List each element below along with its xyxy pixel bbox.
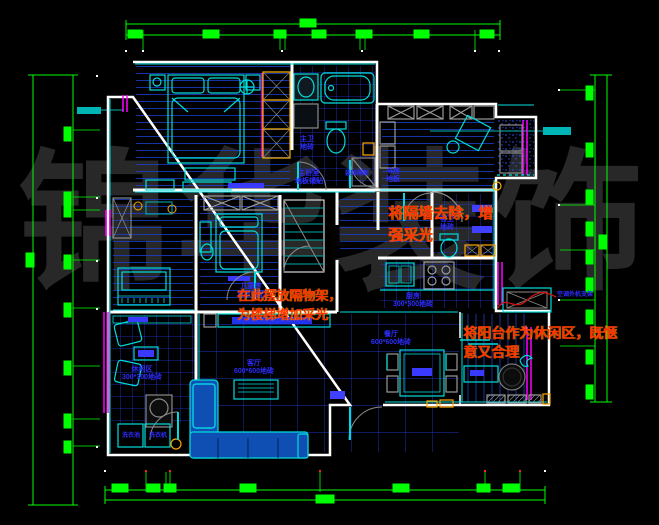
- bench-cushion: [470, 370, 484, 376]
- label-washing-machine: 洗衣机: [149, 433, 167, 440]
- label-study: 书房 地板: [386, 168, 400, 184]
- staircase: [284, 200, 324, 272]
- cad-floorplan-screenshot: 锦华装饰: [0, 0, 659, 525]
- label-dining-room: 餐厅 600*600地砖: [371, 331, 411, 347]
- label-hall-divider: 装饰隔断: [345, 171, 369, 178]
- washer: [294, 104, 318, 128]
- bottom-cabinets: [487, 394, 550, 404]
- floor-lamp: [171, 439, 181, 449]
- annotation-shelf-stairs: 在此摆放隔物架， 为楼梯增加采光: [237, 286, 341, 324]
- label-master-bath: 主卫 地砖: [300, 136, 314, 152]
- label-leisure-room: 休闲区 300*300地砖: [122, 366, 162, 382]
- ac-bracket: [498, 288, 556, 312]
- floorplan-canvas: [0, 0, 659, 525]
- speaker-right: [330, 391, 345, 399]
- annotation-balcony-leisure: 将阳台作为休闲区，既惬 意又合理: [463, 324, 617, 362]
- tv-on-dresser: [228, 183, 264, 188]
- label-master-bedroom: 主卧室 地板铺贴: [295, 170, 323, 186]
- study-cabinets: [388, 106, 494, 119]
- label-ac-bracket: 空调外机支架: [557, 292, 593, 299]
- table-centerpiece: [412, 368, 432, 376]
- label-kitchen: 厨房 300*300地砖: [393, 293, 433, 309]
- annotation-remove-wall: 将隔墙去除，增 强采光: [388, 203, 493, 247]
- label-laundry-sink: 洗衣池: [122, 433, 140, 440]
- label-living-room: 客厅 600*600地砖: [234, 360, 274, 376]
